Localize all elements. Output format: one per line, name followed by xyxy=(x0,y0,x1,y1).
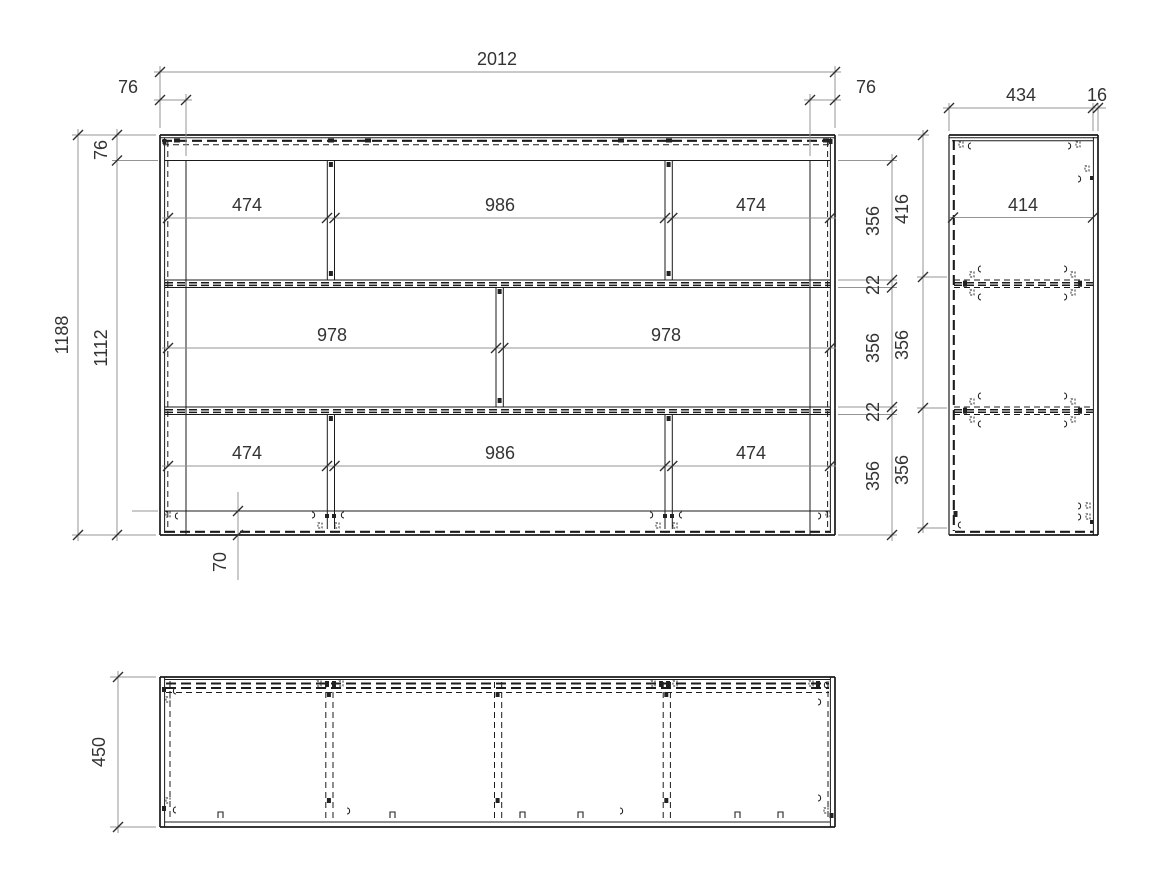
dim-row-bottom-1: 474 xyxy=(232,443,262,463)
dim-side-edge: 16 xyxy=(1087,85,1107,105)
cam-lock-icon xyxy=(666,681,670,687)
cam-lock-icon xyxy=(664,692,668,697)
dim-top-rail: 76 xyxy=(91,140,111,160)
cam-lock-icon xyxy=(325,514,329,518)
cam-lock-icon xyxy=(667,271,671,276)
dim-overall-width: 2012 xyxy=(477,49,517,69)
cam-lock-icon xyxy=(332,681,336,687)
dim-side-depth: 434 xyxy=(1006,85,1036,105)
dim-side-chain-3: 356 xyxy=(892,455,912,485)
drawing-svg: 2012 76 76 434 16 1188 76 1112 474 986 4… xyxy=(0,0,1161,871)
cam-lock-icon xyxy=(670,514,674,518)
dim-plinth: 70 xyxy=(210,552,230,572)
dim-chain-3: 356 xyxy=(863,333,883,363)
dim-row-top-3: 474 xyxy=(736,195,766,215)
cam-lock-icon xyxy=(329,416,333,421)
cam-lock-icon xyxy=(963,281,967,287)
cam-lock-icon xyxy=(174,139,180,143)
cam-lock-icon xyxy=(498,398,502,403)
cam-lock-icon xyxy=(496,692,500,697)
cam-lock-icon xyxy=(830,813,834,818)
cam-lock-icon xyxy=(663,514,667,518)
dim-row-top-1: 474 xyxy=(232,195,262,215)
cam-lock-icon xyxy=(1078,408,1082,414)
cam-lock-icon xyxy=(365,139,371,143)
cam-lock-icon xyxy=(327,692,331,697)
cam-lock-icon xyxy=(1090,520,1093,524)
cam-lock-icon xyxy=(659,681,663,687)
cam-lock-icon xyxy=(329,271,333,276)
dim-plan-depth: 450 xyxy=(89,737,109,767)
cam-lock-icon xyxy=(163,139,167,144)
cam-lock-icon xyxy=(328,139,334,143)
cam-lock-icon xyxy=(162,687,166,692)
dim-side-chain-1: 416 xyxy=(892,194,912,224)
cam-lock-icon xyxy=(667,416,671,421)
dim-height-inner: 1112 xyxy=(91,329,111,366)
dim-chain-2: 22 xyxy=(863,275,883,295)
cam-lock-icon xyxy=(1078,281,1082,287)
background xyxy=(0,0,1161,871)
dim-height-total: 1188 xyxy=(52,316,72,355)
cam-lock-icon xyxy=(325,681,329,687)
dim-inset-right: 76 xyxy=(856,77,876,97)
cam-lock-icon xyxy=(332,514,336,518)
cam-lock-icon xyxy=(618,139,624,143)
cam-lock-icon xyxy=(496,798,500,803)
cam-lock-icon xyxy=(954,511,958,517)
dim-row-mid-1: 978 xyxy=(317,325,347,345)
cabinet-technical-drawing: 2012 76 76 434 16 1188 76 1112 474 986 4… xyxy=(0,0,1161,871)
dim-row-bottom-3: 474 xyxy=(736,443,766,463)
dim-side-inner: 414 xyxy=(1008,195,1038,215)
cam-lock-icon xyxy=(1090,176,1093,180)
cam-lock-icon xyxy=(829,139,833,144)
cam-lock-icon xyxy=(664,798,668,803)
cam-lock-icon xyxy=(963,408,967,414)
cam-lock-icon xyxy=(162,806,166,811)
cam-lock-icon xyxy=(823,139,829,143)
dim-row-mid-2: 978 xyxy=(651,325,681,345)
cam-lock-icon xyxy=(816,681,820,687)
cam-lock-icon xyxy=(329,162,333,167)
dim-chain-4: 22 xyxy=(863,402,883,422)
dim-chain-5: 356 xyxy=(863,461,883,491)
cam-lock-icon xyxy=(667,162,671,167)
dim-side-chain-2: 356 xyxy=(892,330,912,360)
cam-lock-icon xyxy=(498,289,502,294)
cam-lock-icon xyxy=(666,139,672,143)
dim-row-bottom-2: 986 xyxy=(485,443,515,463)
dim-chain-1: 356 xyxy=(863,206,883,236)
dim-row-top-2: 986 xyxy=(485,195,515,215)
cam-lock-icon xyxy=(327,798,331,803)
dim-inset-left: 76 xyxy=(118,77,138,97)
